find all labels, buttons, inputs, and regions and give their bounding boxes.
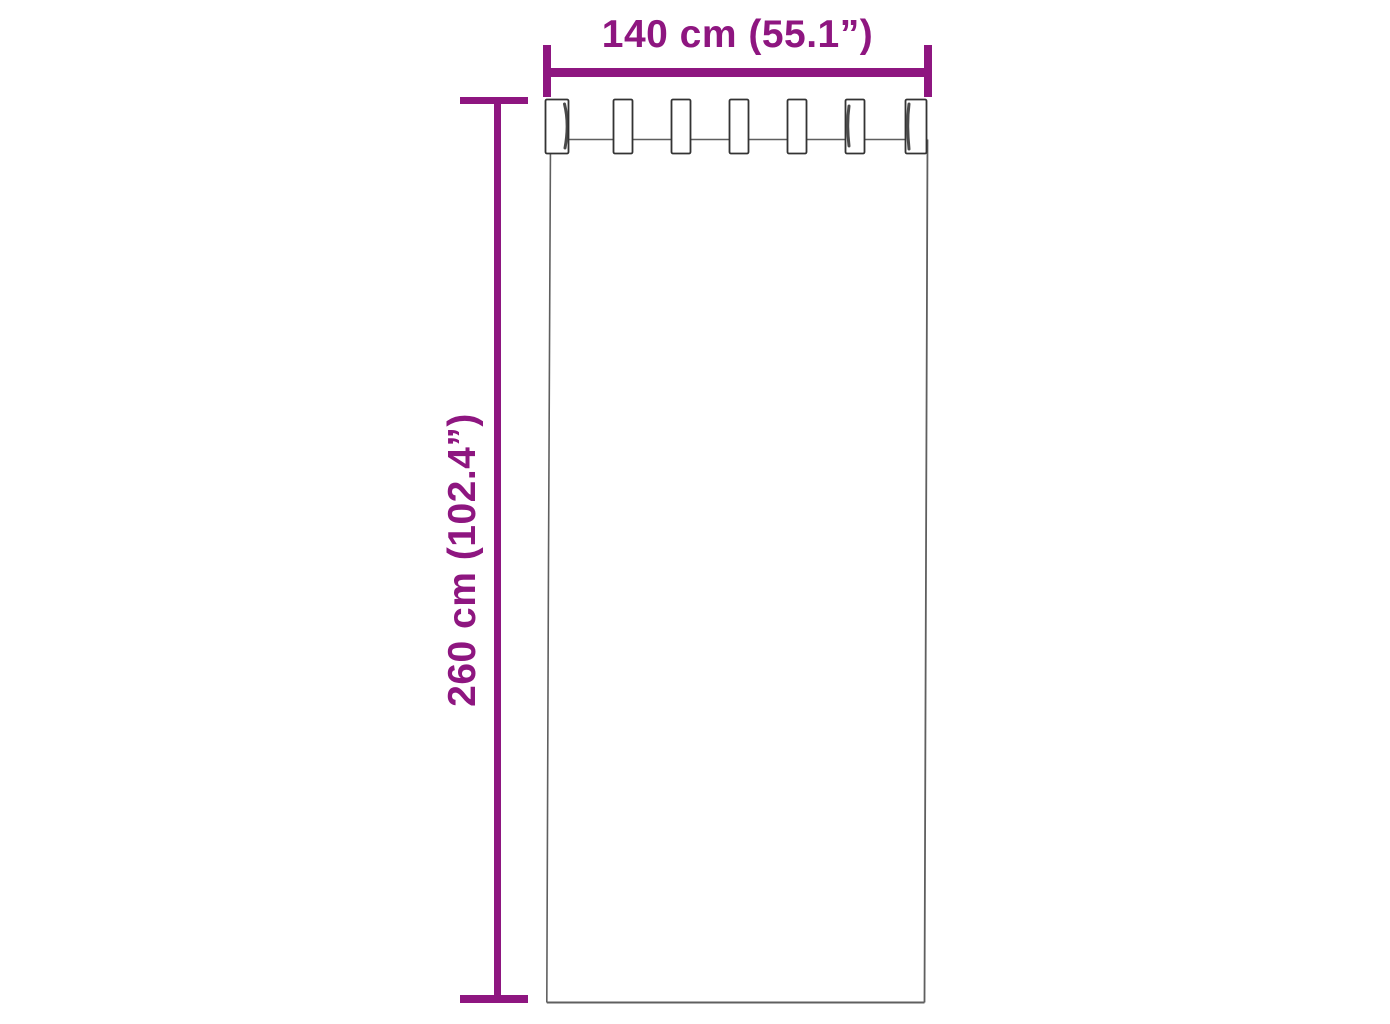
height-dimension-end-cap-bottom (460, 995, 528, 1003)
width-dimension-end-cap-left (543, 45, 551, 97)
tab-fold-shadow (848, 106, 849, 146)
curtain-tab (614, 100, 633, 154)
curtain-drawing (0, 0, 1390, 1024)
curtain-tab (788, 100, 807, 154)
curtain-tab (730, 100, 749, 154)
curtain-left-edge (547, 140, 551, 1003)
height-dimension-end-cap-top (460, 97, 528, 104)
diagram-canvas: 140 cm (55.1”) 260 cm (102.4”) (0, 0, 1390, 1024)
curtain-right-edge (925, 140, 928, 1003)
curtain-tab (672, 100, 691, 154)
width-dimension-end-cap-right (924, 45, 932, 97)
width-dimension-label: 140 cm (55.1”) (527, 12, 948, 58)
height-dimension-label: 260 cm (102.4”) (440, 340, 486, 780)
tab-fold-shadow (908, 104, 909, 149)
height-dimension-line (494, 97, 501, 1003)
width-dimension-line (547, 68, 928, 77)
